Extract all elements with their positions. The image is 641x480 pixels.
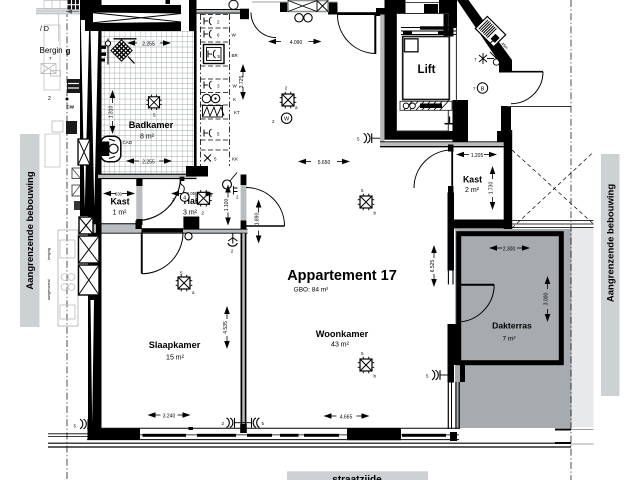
svg-text:4: 4 <box>183 196 186 202</box>
svg-text:Appartement 17: Appartement 17 <box>287 268 397 284</box>
svg-text:1.730: 1.730 <box>489 182 495 195</box>
svg-text:1.205: 1.205 <box>471 153 484 159</box>
svg-text:7 m²: 7 m² <box>503 336 517 343</box>
svg-text:Kast: Kast <box>110 197 129 207</box>
svg-text:KK: KK <box>232 157 238 162</box>
svg-text:2.255: 2.255 <box>142 159 155 165</box>
svg-text:Aangrenzende bebouwing: Aangrenzende bebouwing <box>25 171 36 289</box>
svg-text:1.100: 1.100 <box>224 199 230 212</box>
svg-text:4.535: 4.535 <box>223 321 229 334</box>
svg-text:3 m²: 3 m² <box>183 210 198 217</box>
svg-text:g: g <box>66 47 71 56</box>
svg-text:3.725: 3.725 <box>239 76 245 89</box>
svg-text:1.890: 1.890 <box>255 213 261 226</box>
svg-text:4.665: 4.665 <box>340 414 353 420</box>
svg-text:straatzijde: straatzijde <box>332 475 382 480</box>
svg-text:2.300: 2.300 <box>503 246 516 252</box>
svg-text:KT: KT <box>234 110 240 115</box>
svg-text:CW: CW <box>67 105 75 110</box>
svg-text:berging: berging <box>47 248 51 260</box>
svg-text:W: W <box>284 117 290 123</box>
svg-text:Kast: Kast <box>463 175 482 185</box>
svg-text:3.000: 3.000 <box>544 293 550 306</box>
svg-text:3.240: 3.240 <box>163 413 176 419</box>
svg-text:Bergin: Bergin <box>40 46 63 55</box>
svg-text:5.650: 5.650 <box>318 160 331 166</box>
svg-text:Dakterras: Dakterras <box>492 321 532 331</box>
svg-text:Badkamer: Badkamer <box>129 120 174 130</box>
svg-text:Lift: Lift <box>418 64 436 76</box>
svg-text:4.090: 4.090 <box>290 40 303 46</box>
svg-text:830: 830 <box>115 191 123 196</box>
svg-text:6.525: 6.525 <box>430 260 436 273</box>
svg-text:2.255: 2.255 <box>142 41 155 47</box>
svg-text:GBO: 84 m²: GBO: 84 m² <box>294 287 330 294</box>
svg-text:1.310: 1.310 <box>109 106 115 119</box>
svg-text:K: K <box>233 97 236 102</box>
svg-text:1 m²: 1 m² <box>113 210 128 217</box>
svg-text:43 m²: 43 m² <box>331 342 350 349</box>
svg-text:15 m²: 15 m² <box>166 355 185 362</box>
svg-text:BR: BR <box>232 53 239 58</box>
svg-text:/ D: / D <box>40 26 49 33</box>
svg-text:Woonkamer: Woonkamer <box>316 329 369 339</box>
svg-text:B: B <box>481 87 485 93</box>
svg-text:CAD: CAD <box>123 140 133 145</box>
svg-text:aangrenzend: aangrenzend <box>47 280 51 300</box>
svg-text:Aangrenzende bebouwing: Aangrenzende bebouwing <box>606 184 617 302</box>
svg-text:2 m²: 2 m² <box>465 187 480 194</box>
svg-text:2: 2 <box>48 96 51 102</box>
svg-text:8 m²: 8 m² <box>140 134 155 141</box>
svg-text:Slaapkamer: Slaapkamer <box>149 340 201 350</box>
